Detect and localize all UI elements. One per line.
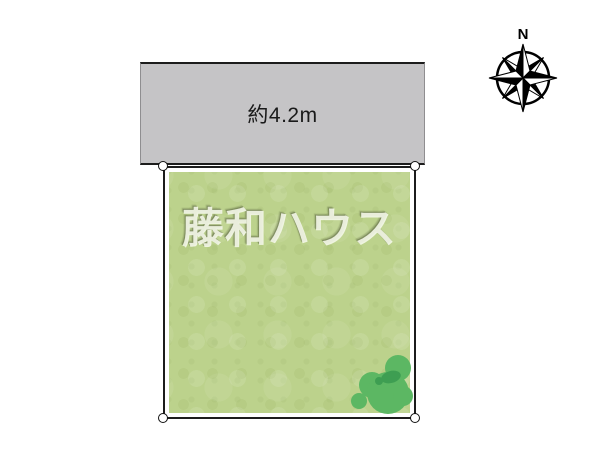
- compass-cardinal-points: [489, 44, 557, 112]
- land-plot: 藤和ハウス: [163, 166, 416, 419]
- boundary-corner-marker: [158, 161, 168, 171]
- boundary-corner-marker: [410, 161, 420, 171]
- boundary-corner-marker: [410, 413, 420, 423]
- tree-blob: [351, 393, 367, 409]
- boundary-corner-marker: [158, 413, 168, 423]
- compass-rose-icon: N: [486, 22, 560, 114]
- tree-blob-dark: [375, 377, 383, 385]
- road-area: 約4.2m: [140, 62, 425, 165]
- site-plan-canvas: 約4.2m 藤和ハウス N: [0, 0, 600, 450]
- road-width-label: 約4.2m: [247, 99, 317, 129]
- tree-cluster-icon: [165, 168, 418, 421]
- tree-blob: [393, 386, 413, 406]
- compass-north-label: N: [518, 26, 529, 43]
